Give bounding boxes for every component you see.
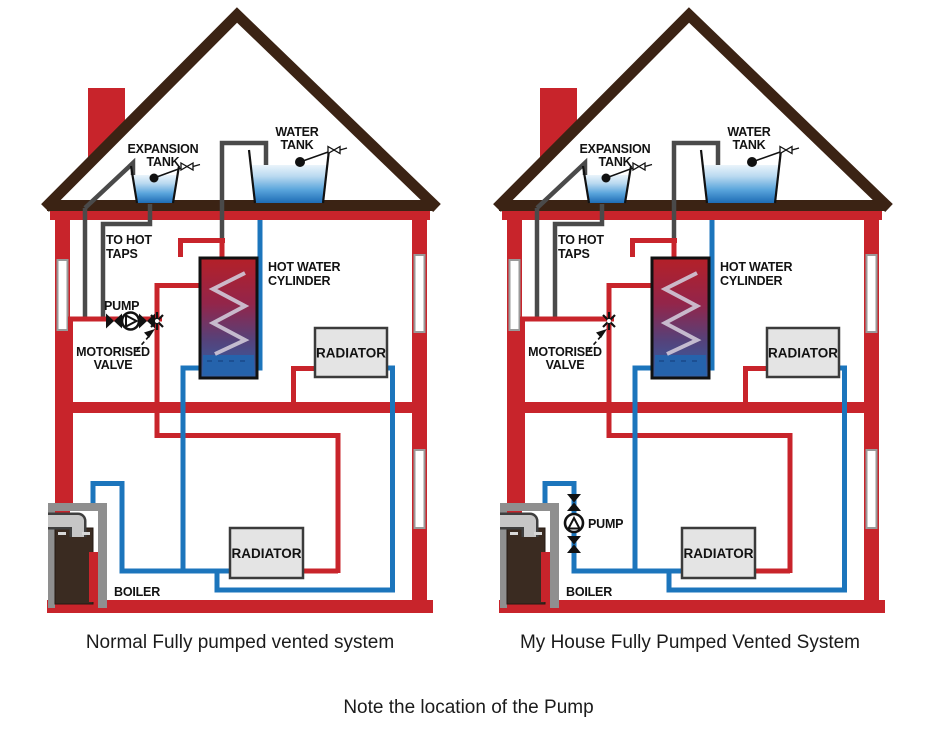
cylinder-base [655,355,706,375]
boiler-body [507,528,545,604]
float-valve-icon [639,163,645,170]
motorised-valve-label: VALVE [94,358,133,372]
water-tank-water [703,165,779,203]
expansion-tank-label: TANK [147,155,180,169]
window-right-lower [867,450,877,528]
boiler-frame [98,503,107,608]
caption-note: Note the location of the Pump [0,697,937,719]
pipe-red-downfeed [155,324,160,438]
gate-valve-icon [106,314,114,329]
boiler-detail [510,532,518,535]
hot-water-cylinder [200,258,257,378]
window-left [510,260,520,330]
water-tank-label: TANK [281,138,314,152]
caption-right-system: My House Fully Pumped Vented System [480,632,900,654]
water-tank-label: WATER [727,125,770,139]
gate-valve-icon [567,494,581,503]
pipe-red-boiler-side [541,552,550,602]
expansion-tank [583,163,652,203]
radiator-upper-label: RADIATOR [768,346,838,361]
hot-water-cylinder-label: CYLINDER [720,274,782,288]
to-hot-taps-label: TO HOT [106,233,152,247]
pipe-red-main-line [520,317,614,322]
motorised-valve-icon [607,319,611,323]
pipe-blue-rad1-drop [390,366,395,593]
ceiling-beam [499,200,885,211]
pipe-blue-floor-link [667,571,672,592]
boiler-detail [82,532,90,535]
pipe-red-boiler-riser [520,317,525,507]
pump-assembly-relocated [565,494,583,553]
pipe-blue-boiler-top [91,481,125,486]
water-tank-label: TANK [733,138,766,152]
expansion-tank-label: EXPANSION [128,142,199,156]
expansion-tank-label: TANK [599,155,632,169]
radiator-lower-label: RADIATOR [684,546,754,561]
pump-label: PUMP [104,299,139,313]
expansion-tank-label: EXPANSION [580,142,651,156]
boiler-frame [48,503,107,511]
motorised-valve-label: MOTORISED [528,345,602,359]
pipe-blue-boiler-drop [120,481,125,574]
boiler-frame [550,503,559,608]
caption-left-system: Normal Fully pumped vented system [30,632,450,654]
pipe-red-rad1-riser [291,366,296,406]
boiler-detail [58,532,66,535]
pipe-red-hot-taps [178,238,225,243]
pipe-red-cylinder-feed [155,283,203,288]
pipe-red-hot-taps [630,238,677,243]
ceiling-red-band [502,211,882,220]
floor-mid [507,402,864,413]
water-tank [249,147,347,204]
pipe-red-cylinder-vent-drop [220,238,225,259]
radiator-lower-label: RADIATOR [232,546,302,561]
pointer-arrowhead [596,329,607,338]
ceiling-red-band [50,211,430,220]
gate-valve-icon [567,545,581,554]
pipe-blue-floor-run [215,588,396,593]
pipe-blue-cylinder-return [181,368,186,573]
hot-water-cylinder-label: CYLINDER [268,274,330,288]
window-left [58,260,68,330]
pipe-red-boiler-side [89,552,98,602]
motorised-valve-label: VALVE [546,358,585,372]
ceiling-beam [47,200,433,211]
window-right-lower [415,450,425,528]
pipe-blue-floor-run [667,588,848,593]
pipe-blue-boiler-top [543,481,577,486]
motorised-valve-label: MOTORISED [76,345,150,359]
hot-water-cylinder [652,258,709,378]
pipe-red-downfeed [607,324,612,438]
float-ball-icon [295,157,305,167]
to-hot-taps-label: TAPS [558,247,590,261]
pipe-blue-cylinder-return-elbow [633,366,654,371]
pipe-red-rad2-drop [788,433,793,573]
pipe-red-cylinder-feed [607,283,655,288]
house-normal-system: RADIATOR RADIATOR EXPANSION TANK WATER T… [40,0,460,625]
radiator-upper-label: RADIATOR [316,346,386,361]
pipe-red-rad2-drop [336,433,341,573]
float-ball-icon [747,157,757,167]
water-tank-label: WATER [275,125,318,139]
hot-water-cylinder-label: HOT WATER [268,260,340,274]
pipe-red-rad1-riser [743,366,748,406]
diagram-canvas: RADIATOR RADIATOR EXPANSION TANK WATER T… [0,0,937,737]
boiler-frame [500,503,559,511]
pipe-red-boiler-riser [68,317,73,507]
gate-valve-icon [567,503,581,512]
pipe-blue-floor-link [215,571,220,592]
window-right-upper [867,255,877,332]
house-my-house-system: RADIATOR RADIATOR EXPANSION TANK WATER T… [492,0,912,625]
float-valve-icon [334,147,340,154]
pipe-red-hot-taps-stub [178,238,183,257]
boiler [500,503,559,608]
float-ball-icon [150,174,159,183]
motorised-valve-icon [155,319,159,323]
house-diagram-left: RADIATOR RADIATOR EXPANSION TANK WATER T… [40,0,460,625]
boiler-label: BOILER [566,585,612,599]
float-valve-icon [786,147,792,154]
boiler-body [55,528,93,604]
expansion-tank [131,163,200,203]
boiler [48,503,107,608]
pipe-red-cylinder-vent-drop [672,238,677,259]
float-valve-icon [187,163,193,170]
cylinder-base [203,355,254,375]
pump-label: PUMP [588,517,623,531]
window-right-upper [415,255,425,332]
float-valve-stub [340,148,347,150]
water-tank [701,147,799,204]
float-ball-icon [602,174,611,183]
pipe-blue-cylinder-return-elbow [181,366,202,371]
float-valve-stub [645,165,652,167]
hot-water-cylinder-label: HOT WATER [720,260,792,274]
pipe-red-hot-taps-stub [630,238,635,257]
pump-assembly [106,313,155,330]
pipe-blue-cylinder-return [633,368,638,573]
house-diagram-right: RADIATOR RADIATOR EXPANSION TANK WATER T… [492,0,912,625]
floor-mid [55,402,412,413]
boiler-label: BOILER [114,585,160,599]
boiler-detail [534,532,542,535]
gate-valve-icon [567,536,581,545]
to-hot-taps-label: TAPS [106,247,138,261]
gate-valve-icon [139,314,147,329]
pipe-blue-rad1-drop [842,366,847,593]
to-hot-taps-label: TO HOT [558,233,604,247]
float-valve-stub [193,165,200,167]
water-tank-water [251,165,327,203]
pointer-arrowhead [144,329,155,338]
float-valve-stub [792,148,799,150]
